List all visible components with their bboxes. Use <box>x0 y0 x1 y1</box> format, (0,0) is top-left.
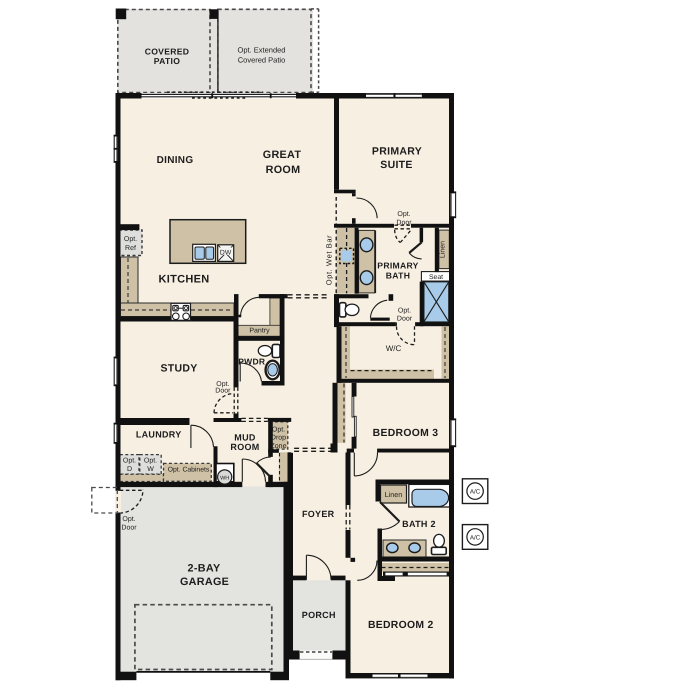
svg-text:2-BAY: 2-BAY <box>188 562 221 574</box>
svg-text:Zone: Zone <box>271 443 287 450</box>
svg-text:A/C: A/C <box>470 534 481 541</box>
svg-text:Linen: Linen <box>439 241 447 258</box>
svg-text:DW: DW <box>220 249 232 256</box>
svg-text:PATIO: PATIO <box>154 56 180 66</box>
svg-text:Opt.: Opt. <box>122 516 135 523</box>
svg-text:Covered Patio: Covered Patio <box>238 56 286 65</box>
svg-text:BEDROOM 3: BEDROOM 3 <box>373 428 439 439</box>
svg-text:A/C: A/C <box>470 489 481 496</box>
svg-text:Opt. Cabinets: Opt. Cabinets <box>168 467 210 474</box>
svg-text:STUDY: STUDY <box>160 362 197 374</box>
svg-text:GREAT: GREAT <box>263 149 302 161</box>
svg-text:KITCHEN: KITCHEN <box>159 274 210 286</box>
svg-text:WH: WH <box>220 475 229 481</box>
svg-text:Opt. Extended: Opt. Extended <box>238 46 286 55</box>
svg-text:PRIMARY: PRIMARY <box>372 146 422 158</box>
svg-text:Opt.: Opt. <box>398 307 411 314</box>
svg-text:Opt.: Opt. <box>123 458 136 465</box>
svg-text:LAUNDRY: LAUNDRY <box>136 430 182 440</box>
svg-text:Opt.: Opt. <box>124 236 137 243</box>
svg-text:Opt.: Opt. <box>397 211 410 218</box>
svg-text:Ref: Ref <box>125 244 136 252</box>
svg-text:Door: Door <box>397 316 413 323</box>
svg-text:COVERED: COVERED <box>145 47 190 57</box>
svg-text:Drop: Drop <box>271 435 286 442</box>
svg-text:Seat: Seat <box>429 274 443 281</box>
svg-text:PORCH: PORCH <box>302 610 336 620</box>
svg-text:Pantry: Pantry <box>249 328 270 335</box>
svg-text:Linen: Linen <box>385 490 403 499</box>
svg-text:Opt.: Opt. <box>144 458 157 465</box>
svg-text:BEDROOM 2: BEDROOM 2 <box>368 620 434 631</box>
svg-text:BATH 2: BATH 2 <box>402 519 436 529</box>
svg-text:GARAGE: GARAGE <box>180 576 229 588</box>
svg-text:FOYER: FOYER <box>302 509 335 519</box>
svg-text:Door: Door <box>396 220 412 227</box>
svg-text:BATH: BATH <box>386 270 410 280</box>
svg-text:PWDR: PWDR <box>238 356 265 366</box>
svg-text:Door: Door <box>215 387 231 394</box>
svg-text:DINING: DINING <box>157 155 194 166</box>
svg-text:W: W <box>147 466 154 473</box>
svg-text:W/C: W/C <box>386 344 402 353</box>
svg-text:MUD: MUD <box>234 432 256 442</box>
svg-text:Door: Door <box>121 525 137 532</box>
svg-text:SUITE: SUITE <box>380 159 412 171</box>
svg-text:PRIMARY: PRIMARY <box>377 261 418 271</box>
svg-text:ROOM: ROOM <box>230 442 259 452</box>
svg-text:ROOM: ROOM <box>266 164 301 176</box>
svg-text:Opt. Wet Bar: Opt. Wet Bar <box>325 235 334 285</box>
svg-text:Opt.: Opt. <box>272 427 285 434</box>
svg-text:D: D <box>127 466 132 473</box>
